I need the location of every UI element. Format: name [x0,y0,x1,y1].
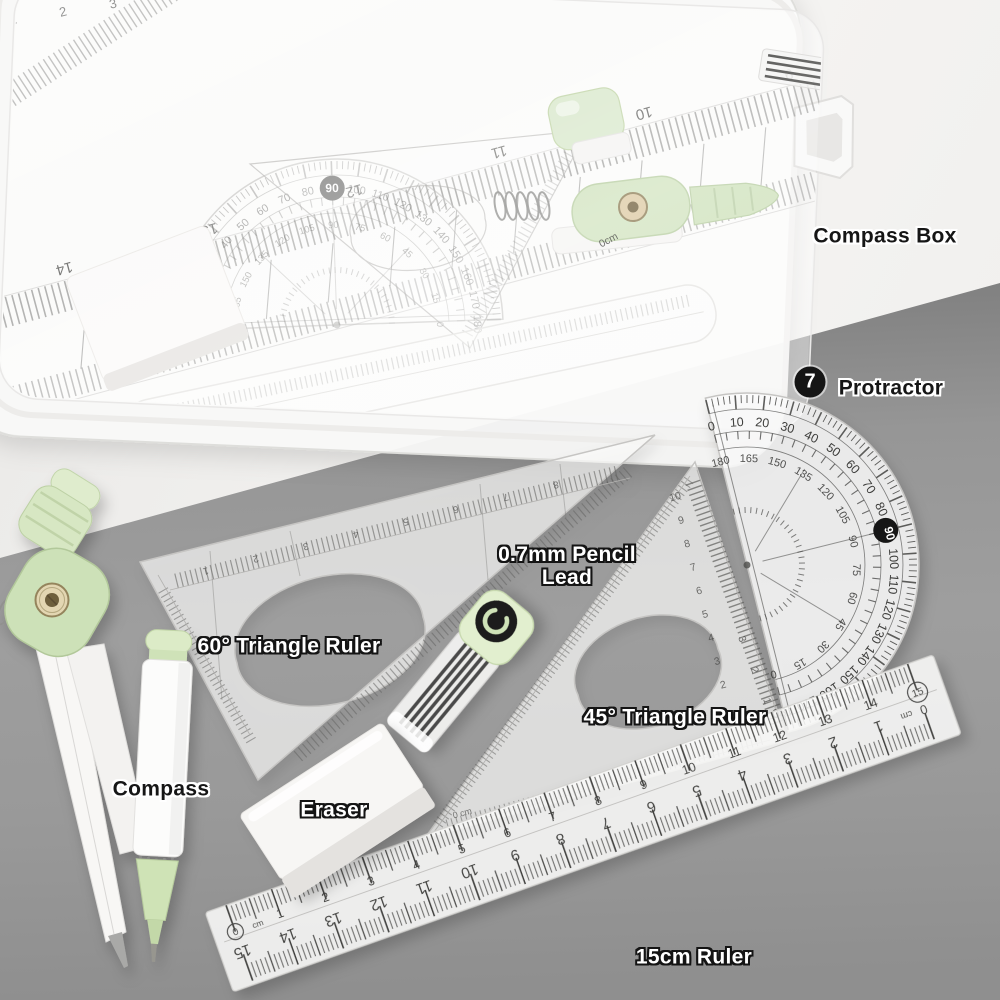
pencil-grip-cone [133,859,178,921]
compass-label: Compass [113,778,210,801]
svg-text:8: 8 [927,26,939,45]
svg-text:20: 20 [755,415,770,430]
compass-knob [13,461,110,563]
pencil-lead-label: 0.7mm Pencil Lead [498,543,636,589]
triangle-45-label: 45° Triangle Ruler [583,706,766,729]
ruler-15cm-label: 15cm Ruler [636,946,752,969]
compass-tool [0,461,194,968]
box-plastic-sheen [0,0,825,433]
protractor-label: Protractor [839,377,944,400]
svg-text:10: 10 [729,415,744,430]
eraser-label: Eraser [300,799,367,822]
pencil-tip [150,944,157,962]
svg-text:75: 75 [850,564,862,576]
pencil-lead-label-line2: Lead [498,566,636,589]
triangle-60-label: 60° Triangle Ruler [197,635,380,658]
svg-text:100: 100 [886,548,901,570]
svg-text:165: 165 [740,453,759,465]
compass-box-label: Compass Box [813,225,956,248]
pencil-lead-label-line1: 0.7mm Pencil [498,543,636,566]
compass-needle [108,932,128,968]
svg-text:110: 110 [885,574,901,595]
scene-drawing: 141312111098 123 01020304050607080901001… [0,0,1000,1000]
geometry-set-photo: 141312111098 123 01020304050607080901001… [0,0,1000,1000]
protractor-count-badge: 7 [795,367,826,398]
